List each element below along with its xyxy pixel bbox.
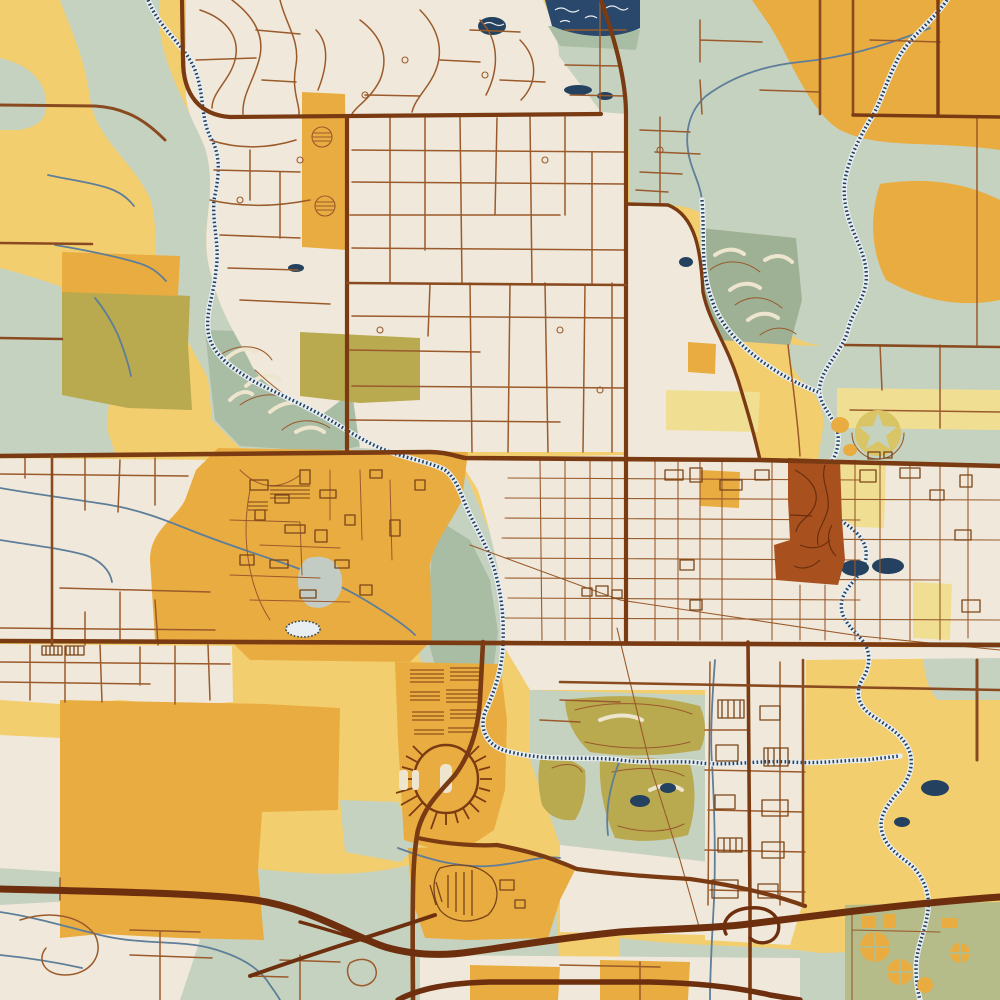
road-ne-horizontal	[853, 115, 1000, 117]
olive-west-block	[62, 288, 192, 410]
city-map	[0, 0, 1000, 1000]
road-tl-2	[0, 243, 92, 244]
urban-sw	[0, 644, 233, 706]
map-canvas[interactable]	[0, 0, 1000, 1000]
lake-laverne	[286, 621, 320, 637]
gold-dt-patch1	[688, 342, 716, 374]
olive-n-campus	[300, 332, 420, 403]
road-tl-3	[0, 338, 62, 339]
land-fills	[0, 0, 1000, 1000]
pale-dt3	[913, 582, 952, 640]
road-duff-ave	[748, 642, 750, 1000]
